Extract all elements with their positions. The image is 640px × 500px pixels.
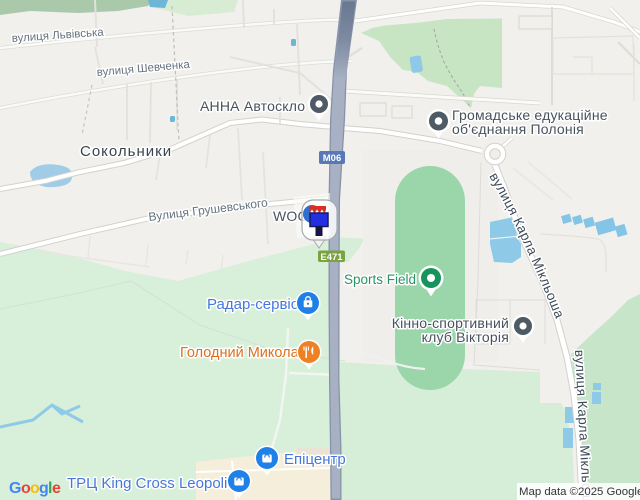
svg-text:Голодний Микола: Голодний Микола <box>180 345 300 361</box>
svg-text:об'єднання Полонія: об'єднання Полонія <box>452 121 584 137</box>
svg-text:клуб Вікторія: клуб Вікторія <box>422 329 509 345</box>
svg-text:Map data ©2025 Google: Map data ©2025 Google <box>519 486 640 498</box>
svg-text:e: e <box>52 480 61 497</box>
svg-text:G: G <box>9 480 21 497</box>
svg-text:M06: M06 <box>323 153 341 164</box>
svg-text:Епіцентр: Епіцентр <box>284 451 346 468</box>
svg-text:Sports Field: Sports Field <box>344 272 416 287</box>
svg-text:Сокольники: Сокольники <box>80 143 172 160</box>
svg-text:ТРЦ King Cross Leopolis: ТРЦ King Cross Leopolis <box>67 475 235 492</box>
svg-text:E471: E471 <box>320 252 343 263</box>
svg-text:Радар-сервіс: Радар-сервіс <box>207 296 299 313</box>
svg-text:АННА Автоскло: АННА Автоскло <box>200 98 305 114</box>
